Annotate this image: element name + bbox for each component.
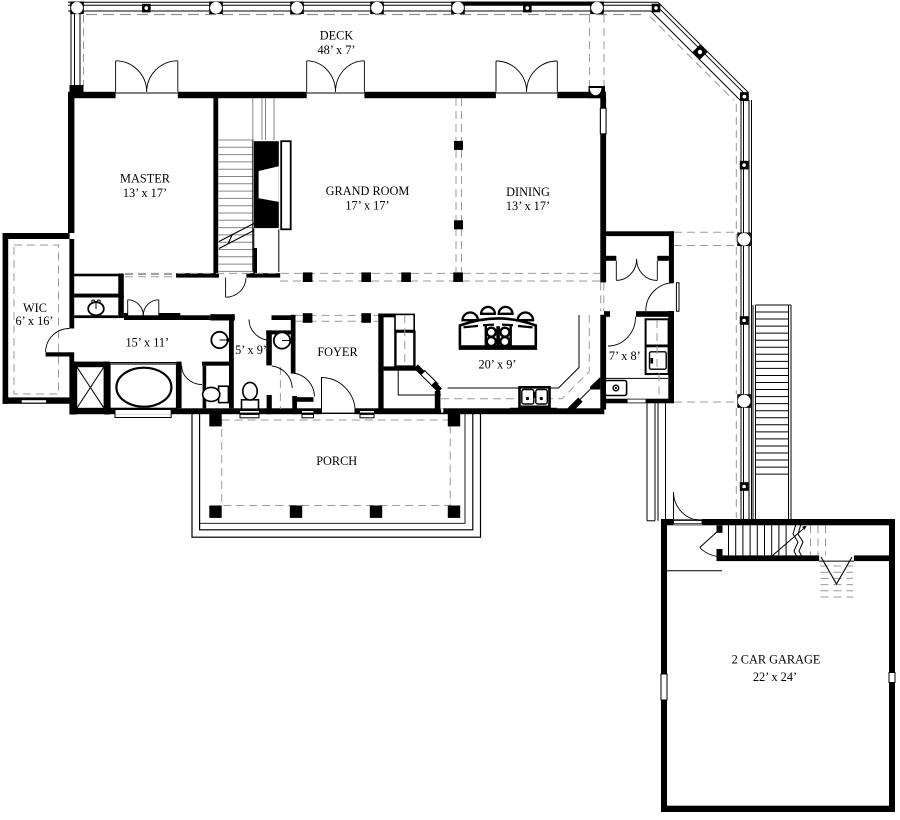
svg-text:13’ x 17’: 13’ x 17’ [123,186,167,200]
svg-text:48’ x 7’: 48’ x 7’ [317,43,355,57]
svg-text:DINING: DINING [506,185,550,199]
svg-text:20’ x 9’: 20’ x 9’ [478,358,516,372]
svg-text:FOYER: FOYER [317,345,358,359]
svg-text:13’ x 17’: 13’ x 17’ [506,199,550,213]
svg-text:PORCH: PORCH [316,454,357,468]
svg-text:2 CAR GARAGE: 2 CAR GARAGE [732,653,821,667]
svg-text:6’ x 16’: 6’ x 16’ [15,314,53,328]
svg-text:MASTER: MASTER [120,172,171,186]
svg-text:17’ x 17’: 17’ x 17’ [345,199,389,213]
svg-text:15’ x 11’: 15’ x 11’ [125,336,169,350]
svg-text:5’ x 9’: 5’ x 9’ [235,343,267,357]
svg-text:WIC: WIC [23,301,47,315]
svg-text:22’ x 24’: 22’ x 24’ [753,670,797,684]
svg-text:GRAND ROOM: GRAND ROOM [326,184,410,198]
svg-text:DECK: DECK [320,29,354,43]
svg-text:7’ x 8’: 7’ x 8’ [609,349,641,363]
